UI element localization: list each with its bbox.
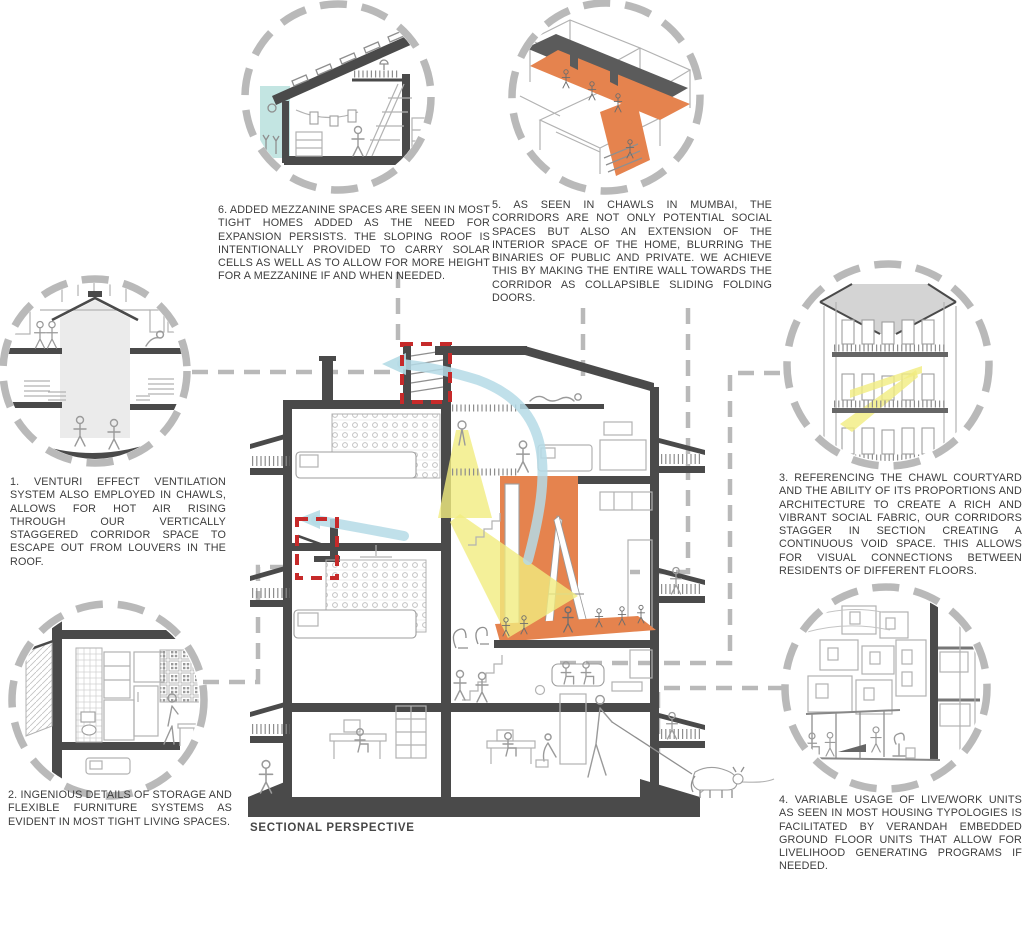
detail-circle-venturi (3, 278, 187, 463)
detail-circle-corridor-axon (512, 3, 700, 191)
detail-circle-livework (785, 587, 987, 789)
right-balconies (659, 438, 705, 748)
callout-text-2: 2. INGENIOUS DETAILS OF STORAGE AND FLEX… (8, 789, 232, 829)
callout-text-4: 4. VARIABLE USAGE OF LIVE/WORK UNITS AS … (779, 794, 1022, 874)
presentation-board: 6. ADDED MEZZANINE SPACES ARE SEEN IN MO… (0, 0, 1024, 925)
detail-circle-courtyard (787, 264, 989, 467)
callout-text-3: 3. REFERENCING THE CHAWL COURTYARD AND T… (779, 472, 1022, 578)
sectional-perspective-drawing (0, 0, 1024, 925)
callout-text-1: 1. VENTURI EFFECT VENTILATION SYSTEM ALS… (10, 476, 226, 569)
detail-circle-mezzanine (245, 4, 432, 190)
building-section (248, 344, 774, 817)
callout-text-6: 6. ADDED MEZZANINE SPACES ARE SEEN IN MO… (218, 204, 490, 284)
callout-text-5: 5. AS SEEN IN CHAWLS IN MUMBAI, THE CORR… (492, 199, 772, 305)
detail-circle-storage (12, 604, 204, 796)
drawing-title-label: SECTIONAL PERSPECTIVE (250, 822, 415, 834)
